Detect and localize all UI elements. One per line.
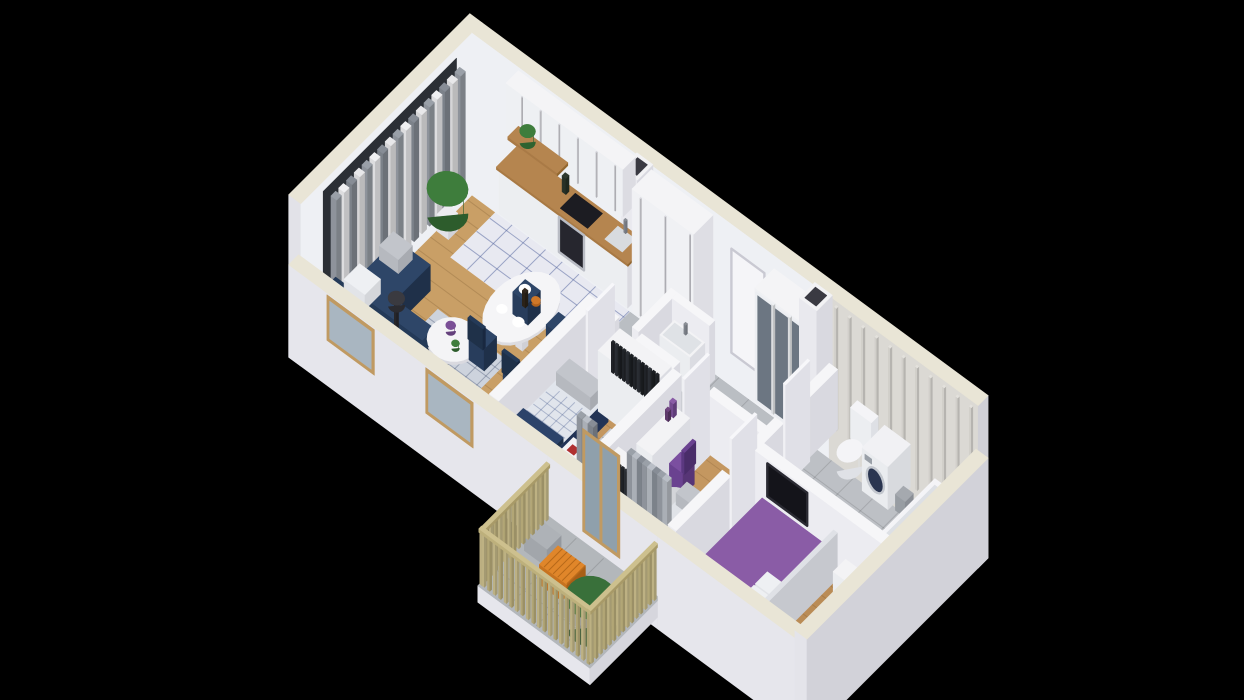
balcony-railing-left — [526, 485, 528, 540]
living-room-curtains — [414, 118, 419, 242]
balcony-railing-front — [540, 573, 542, 628]
kids-chair-back — [682, 450, 685, 474]
balcony-railing-right — [621, 577, 623, 632]
balcony-railing-front — [543, 577, 545, 632]
balcony-railing-front — [537, 573, 539, 628]
dining-chair-back — [483, 327, 485, 351]
upper-cabinet-seams — [596, 151, 597, 152]
balcony-railing-right — [628, 573, 630, 628]
balcony-railing-left — [544, 466, 546, 521]
kitchen-faucet — [626, 220, 628, 234]
balcony-railing-right — [648, 550, 650, 605]
balcony-railing-left — [533, 480, 535, 535]
balcony-railing-left — [542, 471, 544, 526]
balcony-railing-right — [590, 609, 592, 664]
balcony-railing-left — [537, 476, 539, 531]
bedroom1-door-leaf — [730, 437, 732, 540]
balcony-railing-right — [641, 559, 643, 614]
upper-cabinet-seams — [559, 124, 560, 125]
balcony-railing-front — [493, 541, 495, 596]
balcony-railing-right — [654, 546, 656, 601]
floor-lamp-shade — [388, 291, 405, 305]
tall-unit-seams — [640, 198, 641, 199]
balcony-railing-left — [517, 494, 519, 549]
balcony-railing-left — [547, 466, 549, 521]
exterior-wall-right-end — [795, 630, 807, 700]
balcony-railing-right — [596, 604, 598, 659]
balcony-railing-front — [512, 553, 514, 608]
tall-unit-seams — [665, 216, 666, 217]
upper-cabinet-seams — [521, 96, 522, 97]
balcony-railing-left — [519, 494, 521, 549]
counter-wine-bottle — [562, 176, 566, 195]
balcony-railing-right — [623, 577, 625, 632]
balcony-railing-front — [565, 594, 567, 649]
upper-cabinet-seams — [540, 110, 541, 111]
balcony-railing-front — [554, 586, 556, 641]
balcony-railing-left — [514, 499, 516, 554]
balcony-railing-front — [484, 532, 486, 587]
balcony-railing-front — [570, 598, 572, 653]
balcony-railing-right — [652, 546, 654, 601]
table-wine-bottle — [525, 290, 528, 308]
balcony-railing-front — [548, 581, 550, 636]
balcony-railing-front — [567, 593, 569, 648]
hanging-clothes — [630, 356, 632, 388]
floorplan-3d-render — [0, 0, 1244, 700]
balcony-railing-front — [559, 590, 561, 645]
balcony-railing-front — [584, 606, 586, 661]
upper-cabinet-seams — [615, 166, 616, 212]
balcony-railing-right — [610, 591, 612, 646]
balcony-railing-front — [521, 561, 523, 616]
living-room-curtains — [406, 126, 411, 250]
hanging-clothes — [619, 347, 621, 379]
balcony-railing-front — [573, 598, 575, 653]
balcony-railing-front — [501, 545, 503, 600]
hanging-clothes — [626, 353, 628, 385]
balcony-railing-left — [521, 490, 523, 545]
balcony-railing-front — [523, 561, 525, 616]
balcony-railing-right — [616, 582, 618, 637]
balcony-railing-left — [524, 489, 526, 544]
balcony-railing-right — [632, 568, 634, 623]
balcony-railing-right — [643, 555, 645, 610]
dinner-plate — [497, 304, 508, 313]
balcony-railing-right — [612, 586, 614, 641]
balcony-railing-right — [605, 595, 607, 650]
balcony-railing-front — [488, 537, 490, 592]
balcony-railing-right — [599, 600, 601, 655]
balcony-railing-front — [490, 537, 492, 592]
mirror-door-dividers — [773, 304, 775, 415]
balcony-railing-right — [592, 608, 594, 663]
balcony-railing-left — [540, 471, 542, 526]
balcony-railing-right — [625, 573, 627, 628]
balcony-railing-right — [650, 550, 652, 605]
dinner-plate — [513, 317, 525, 327]
upper-cabinet-seams — [577, 138, 578, 139]
balcony-railing-front — [510, 553, 512, 608]
balcony-railing-left — [480, 531, 482, 586]
balcony-railing-right — [646, 555, 648, 610]
living-plant — [427, 171, 468, 206]
balcony-railing-front — [551, 581, 553, 636]
hanging-clothes — [633, 358, 635, 390]
upper-cabinet-seams — [614, 165, 615, 166]
shelf-plant — [520, 124, 536, 137]
tall-unit-seams — [689, 234, 690, 235]
balcony-railing-right — [630, 568, 632, 623]
table-wine-bottle — [522, 291, 525, 308]
balcony-railing-left — [535, 476, 537, 531]
balcony-railing-front — [545, 577, 547, 632]
balcony-railing-right — [639, 559, 641, 614]
wc-partition-wall — [710, 320, 715, 384]
coffee-table-plant-decor — [452, 340, 460, 347]
balcony-railing-front — [562, 589, 564, 644]
balcony-door-divider — [600, 445, 602, 542]
coffee-table-purple-decor — [446, 321, 456, 329]
balcony-railing-right — [634, 564, 636, 619]
balcony-railing-front — [515, 557, 517, 612]
herringbone-tile-texture — [917, 367, 919, 491]
upper-cabinet-seams — [578, 138, 579, 184]
balcony-railing-front — [504, 549, 506, 604]
balcony-railing-right — [614, 586, 616, 641]
upper-cabinet-seams — [597, 152, 598, 198]
fruit-bowl — [531, 296, 540, 304]
balcony-railing-front — [495, 541, 497, 596]
balcony-railing-left — [530, 480, 532, 535]
balcony-railing-front — [529, 565, 531, 620]
hanging-clothes — [637, 361, 639, 393]
tall-unit-seams — [641, 198, 642, 316]
balcony-railing-right — [603, 595, 605, 650]
balcony-railing-front — [532, 569, 534, 624]
balcony-railing-right — [607, 591, 609, 646]
hanging-clothes — [611, 342, 613, 374]
balcony-railing-front — [576, 602, 578, 657]
balcony-railing-front — [526, 565, 528, 620]
balcony-railing-front — [506, 549, 508, 604]
hanging-clothes — [641, 364, 643, 396]
apartment-isometric-view — [0, 0, 1244, 700]
balcony-railing-front — [587, 610, 589, 665]
living-room-curtains — [422, 110, 427, 234]
balcony-railing-front — [556, 585, 558, 640]
living-room-curtains — [430, 102, 435, 226]
balcony-railing-front — [482, 533, 484, 588]
balcony-railing-front — [581, 606, 583, 661]
balcony-railing-front — [534, 569, 536, 624]
balcony-railing-front — [499, 545, 501, 600]
balcony-railing-front — [517, 557, 519, 612]
balcony-railing-right — [619, 582, 621, 637]
hanging-clothes — [644, 366, 646, 398]
balcony-railing-right — [601, 599, 603, 654]
balcony-railing-left — [512, 499, 514, 554]
balcony-railing-right — [594, 604, 596, 659]
hanging-clothes — [622, 350, 624, 382]
balcony-railing-front — [578, 602, 580, 657]
balcony-railing-left — [528, 485, 530, 540]
balcony-railing-right — [637, 564, 639, 619]
